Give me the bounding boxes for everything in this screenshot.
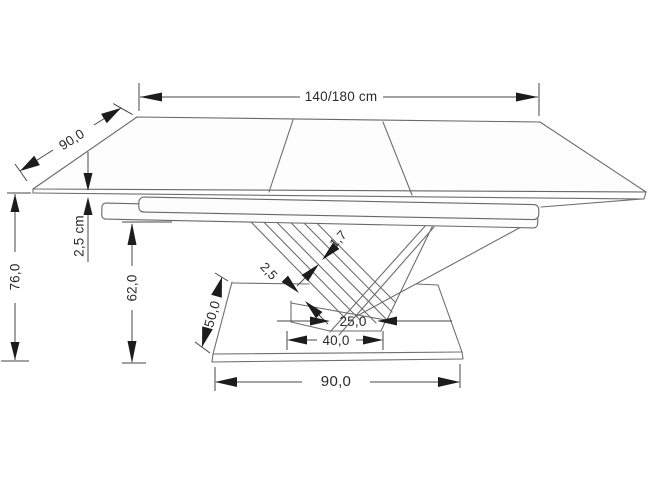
- arrowhead-up: [11, 194, 20, 212]
- arrowhead-left: [377, 317, 397, 326]
- dim-base-depth: 50,0: [195, 273, 228, 353]
- dim-foot-length-label: 25,0: [339, 314, 366, 329]
- dim-foot-span-label: 40,0: [322, 333, 349, 348]
- tabletop: [33, 117, 646, 207]
- dim-base-width-label: 90,0: [321, 373, 351, 390]
- arrowhead-right: [363, 336, 383, 345]
- dim-top-length: 140/180 cm: [139, 83, 539, 116]
- dim-top-depth-label: 90,0: [56, 126, 87, 153]
- technical-drawing-canvas: 140/180 cm 90,0 2,5 cm 76,0 62,0: [0, 0, 652, 489]
- dim-foot-span: 40,0: [287, 331, 383, 350]
- arrowhead-right: [516, 93, 538, 102]
- extension-frame: [102, 197, 539, 228]
- arrowhead-down: [11, 342, 20, 360]
- dim-foot-length: 25,0: [277, 314, 452, 329]
- dim-panel-thickness-label: 2,5: [257, 259, 280, 282]
- arrowhead-upper-right: [101, 108, 121, 123]
- arrowhead-right: [310, 317, 330, 326]
- tabletop-surface: [33, 117, 646, 192]
- dim-understructure-height-label: 62,0: [125, 274, 140, 301]
- dim-top-thickness-label: 2,5 cm: [72, 215, 87, 257]
- dim-top-length-label: 140/180 cm: [305, 89, 378, 104]
- arrowhead-lower-left: [20, 156, 40, 171]
- arrowhead-up: [128, 223, 137, 245]
- arrowhead-up: [84, 197, 93, 215]
- arrowhead-left: [287, 336, 307, 345]
- dim-understructure-height: 62,0: [122, 222, 172, 363]
- arrowhead-right: [438, 377, 460, 387]
- dim-panel-thickness: 2,5: [257, 259, 328, 324]
- arrowhead-down: [128, 341, 137, 363]
- arrowhead-down: [202, 326, 213, 347]
- dim-total-height-label: 76,0: [8, 263, 23, 290]
- plinth-base: [212, 282, 463, 362]
- arrowhead-left: [140, 93, 162, 102]
- dim-strip-thickness-label: 1,7: [326, 227, 349, 250]
- arrowhead-left: [215, 377, 237, 387]
- dim-base-depth-label: 50,0: [201, 299, 223, 329]
- pedestal-wide-leg: [355, 220, 534, 322]
- dim-total-height: 76,0: [1, 193, 31, 361]
- dim-base-width: 90,0: [215, 364, 460, 391]
- table-dimension-drawing: 140/180 cm 90,0 2,5 cm 76,0 62,0: [0, 0, 652, 489]
- arrowhead-up: [211, 277, 222, 298]
